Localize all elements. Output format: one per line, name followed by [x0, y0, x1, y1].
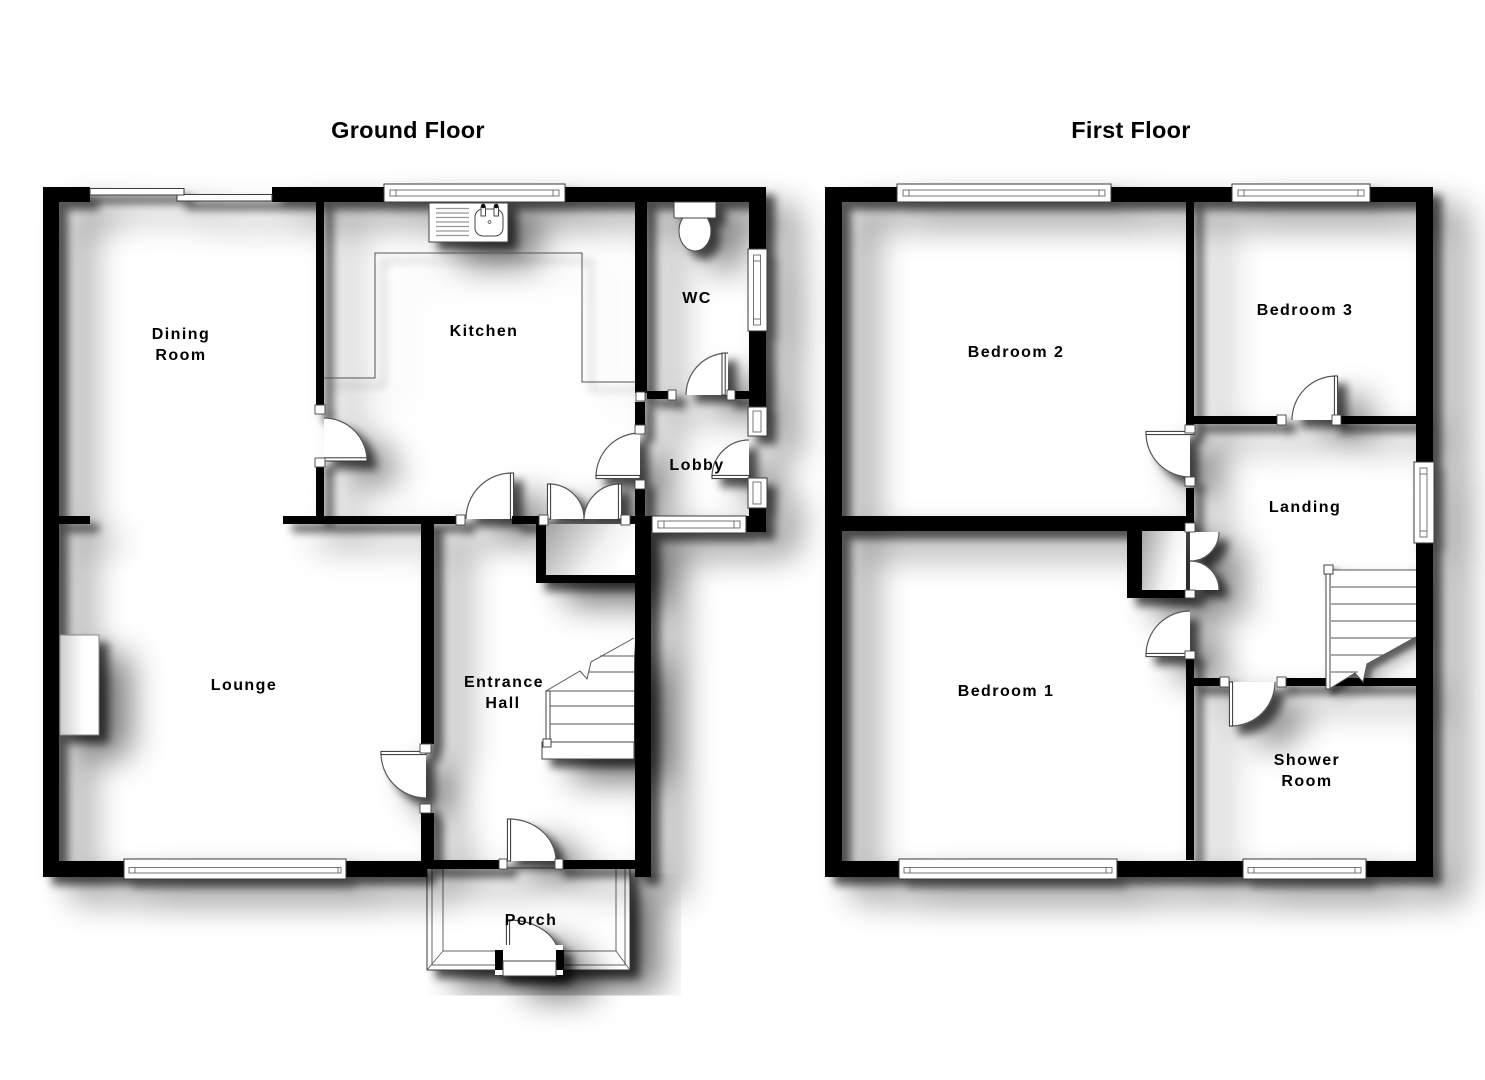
svg-text:Room: Room: [155, 347, 206, 364]
svg-text:Landing: Landing: [1269, 499, 1341, 516]
svg-text:First Floor: First Floor: [1071, 117, 1191, 143]
svg-text:Room: Room: [1281, 773, 1332, 790]
svg-text:Porch: Porch: [505, 912, 558, 929]
svg-text:Ground Floor: Ground Floor: [331, 117, 485, 143]
svg-text:Dining: Dining: [152, 326, 210, 343]
svg-text:Lounge: Lounge: [211, 677, 277, 694]
svg-text:Entrance: Entrance: [464, 674, 544, 691]
svg-text:Hall: Hall: [485, 695, 520, 712]
svg-text:Bedroom 2: Bedroom 2: [968, 344, 1065, 361]
svg-text:WC: WC: [682, 290, 712, 307]
svg-text:Kitchen: Kitchen: [450, 323, 519, 340]
svg-text:Lobby: Lobby: [669, 457, 724, 474]
svg-text:Bedroom 3: Bedroom 3: [1257, 302, 1354, 319]
svg-text:Shower: Shower: [1274, 752, 1341, 769]
svg-text:Bedroom 1: Bedroom 1: [958, 683, 1055, 700]
